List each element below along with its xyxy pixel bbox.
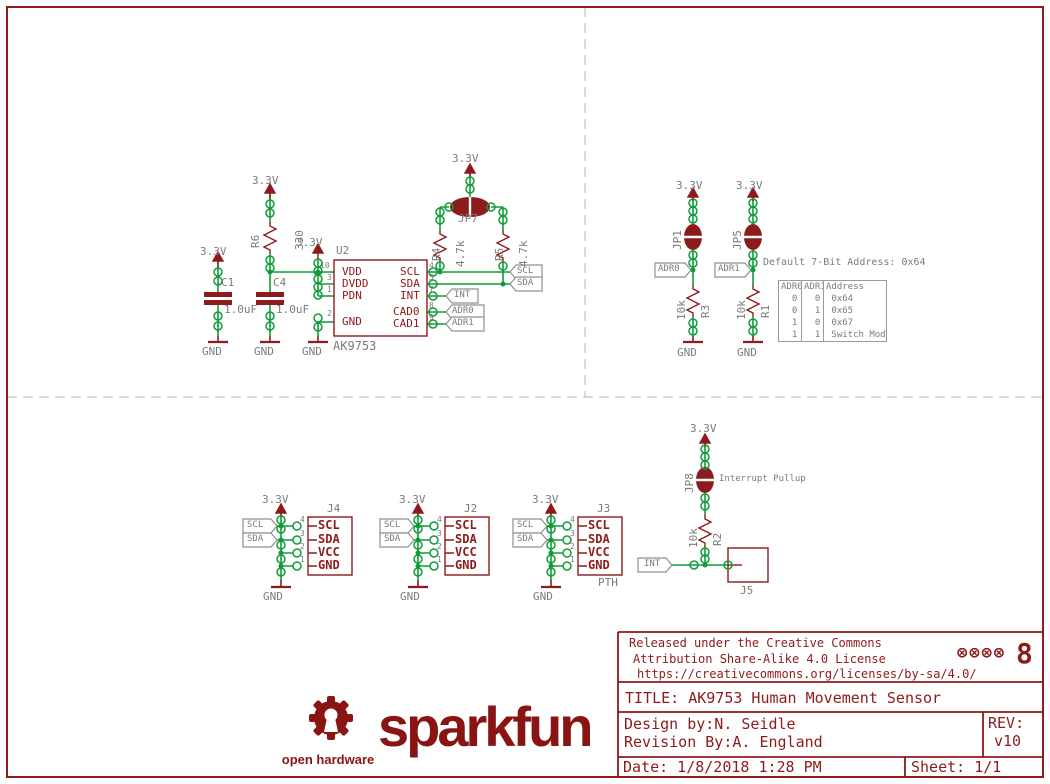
schematic-sheet: 3.3VC11.0uFGND3.3VR6330C41.0uFGND3.3VGND… <box>0 0 1050 784</box>
refdes: C4 <box>273 277 286 288</box>
jumper-note: Interrupt Pullup <box>719 475 806 484</box>
pin-name: CAD1 <box>393 318 420 329</box>
gnd-label: GND <box>263 591 283 602</box>
gnd-label: GND <box>677 347 697 358</box>
refdes: JP7 <box>458 213 478 224</box>
pin-number: 4 <box>570 516 575 524</box>
pin-number: 4 <box>300 516 305 524</box>
net-flag-label: SDA <box>517 535 533 544</box>
power-net-label: 3.3V <box>296 237 323 248</box>
refdes: JP5 <box>732 230 743 250</box>
value-label: 10k <box>676 300 687 320</box>
pin-number: 1 <box>570 556 575 564</box>
pin-name: DVDD <box>342 278 369 289</box>
connector-pin-label: GND <box>588 559 610 571</box>
pin-name: SCL <box>400 266 420 277</box>
net-flag-label: SDA <box>384 535 400 544</box>
design-by: Design by:N. Seidle <box>624 716 796 733</box>
connector-pin-label: SCL <box>588 519 610 531</box>
license-line-2: Attribution Share-Alike 4.0 License <box>633 653 886 667</box>
address-table-header: ADR1 <box>802 281 824 293</box>
pin-number: 1 <box>300 556 305 564</box>
address-table-cell: 1 <box>802 329 824 341</box>
net-flag-label: ADR1 <box>718 265 740 274</box>
pin-name: GND <box>342 316 362 327</box>
solder-jumpers <box>450 197 762 493</box>
net-flag-label: ADR0 <box>452 307 474 316</box>
sparkfun-wordmark: sparkfun <box>378 694 591 759</box>
refdes: JP1 <box>672 230 683 250</box>
refdes: J5 <box>740 585 753 596</box>
address-table-cell: 1 <box>802 305 824 317</box>
pin-number: 2 <box>300 543 305 551</box>
net-flag-label: INT <box>454 291 470 300</box>
net-flag-label: SCL <box>247 521 263 530</box>
net-flag-label: SDA <box>517 279 533 288</box>
power-net-label: 3.3V <box>399 494 426 505</box>
power-net-label: 3.3V <box>262 494 289 505</box>
value-label: 4.7k <box>455 241 466 268</box>
power-net-label: 3.3V <box>532 494 559 505</box>
connector-pin-label: SDA <box>318 533 340 545</box>
connector-pin-label: SCL <box>455 519 477 531</box>
sparkfun-logo: sparkfun open hardware <box>278 686 618 774</box>
refdes: R2 <box>712 533 723 546</box>
power-net-label: 3.3V <box>676 180 703 191</box>
refdes: R5 <box>494 248 505 261</box>
refdes: R4 <box>431 248 442 261</box>
power-net-label: 3.3V <box>200 246 227 257</box>
pin-number: 10 <box>320 262 330 270</box>
value-label: 1.0uF <box>276 304 309 315</box>
net-flag-label: SCL <box>517 267 533 276</box>
open-hardware-label: open hardware <box>278 752 378 767</box>
sheet-divider-lines <box>7 7 1043 397</box>
pin-number: 7 <box>429 286 434 294</box>
net-flag-label: ADR0 <box>658 265 680 274</box>
resistor-r6 <box>264 222 276 254</box>
net-flag-label: SCL <box>384 521 400 530</box>
connector-pin-label: GND <box>318 559 340 571</box>
gnd-label: GND <box>302 346 322 357</box>
refdes: R1 <box>760 305 771 318</box>
power-net-label: 3.3V <box>690 423 717 434</box>
address-table-cell: 0x67 <box>824 317 886 329</box>
refdes: R6 <box>250 235 261 248</box>
power-net-label: 3.3V <box>736 180 763 191</box>
pin-number: 2 <box>570 543 575 551</box>
oshw-mark-icon: 8 <box>1016 638 1033 670</box>
net-flag-label: SCL <box>517 521 533 530</box>
resistor-r3 <box>687 285 699 317</box>
net-flag-label: INT <box>644 560 660 569</box>
refdes: U2 <box>336 245 349 256</box>
part-number: AK9753 <box>333 340 376 352</box>
gnd-label: GND <box>254 346 274 357</box>
address-table-cell: 1 <box>779 329 802 341</box>
address-table-cell: Switch Mode <box>824 329 886 341</box>
power-net-label: 3.3V <box>452 153 479 164</box>
license-url: https://creativecommons.org/licenses/by-… <box>637 668 977 682</box>
pin-number: 8 <box>429 302 434 310</box>
value-label: 10k <box>688 528 699 548</box>
pin-number: 2 <box>327 310 332 318</box>
net-flag-label: ADR1 <box>452 319 474 328</box>
gnd-label: GND <box>533 591 553 602</box>
gnd-symbols <box>208 336 763 587</box>
address-table: ADR0ADR1Address 0 0 0x64 0 1 0x65 1 0 0x… <box>778 280 887 342</box>
address-table-cell: 0 <box>802 293 824 305</box>
address-table-cell: 0x65 <box>824 305 886 317</box>
refdes: JP8 <box>684 473 695 493</box>
rev-value: v10 <box>994 733 1021 750</box>
pin-number: 9 <box>429 314 434 322</box>
cc-license-icons: ⊗⊗⊗⊗ <box>957 644 1006 664</box>
gnd-label: GND <box>202 346 222 357</box>
rev-label: REV: <box>988 715 1024 732</box>
connector-pin-label: VCC <box>318 546 340 558</box>
pin-number: 1 <box>437 556 442 564</box>
pin-name: CAD0 <box>393 306 420 317</box>
connector-pin-label: SDA <box>588 533 610 545</box>
pin-number: 3 <box>300 530 305 538</box>
pin-number: 2 <box>437 543 442 551</box>
date-value: Date: 1/8/2018 1:28 PM <box>623 759 822 776</box>
power-net-label: 3.3V <box>252 175 279 186</box>
sheet-value: Sheet: 1/1 <box>911 759 1001 776</box>
capacitor-c1 <box>204 292 232 297</box>
gnd-label: GND <box>737 347 757 358</box>
jumper-splits <box>470 197 762 480</box>
pin-number: 3 <box>570 530 575 538</box>
pin-name: SDA <box>400 278 420 289</box>
pin-number: 3 <box>327 274 332 282</box>
value-label: 10k <box>736 300 747 320</box>
pin-number: 5 <box>429 274 434 282</box>
address-table-cell: 0x64 <box>824 293 886 305</box>
capacitor-c4 <box>256 292 284 297</box>
address-table-cell: 1 <box>779 317 802 329</box>
pin-number: 1 <box>327 286 332 294</box>
refdes: J4 <box>327 503 340 514</box>
address-table-cell: 0 <box>779 305 802 317</box>
connector-pin-label: VCC <box>455 546 477 558</box>
resistor-r2 <box>699 515 711 547</box>
connector-pin-label: SCL <box>318 519 340 531</box>
connector-pin-label: VCC <box>588 546 610 558</box>
refdes: J2 <box>464 503 477 514</box>
refdes: C1 <box>221 277 234 288</box>
pin-number: 4 <box>437 516 442 524</box>
address-table-header: Address <box>824 281 886 293</box>
vcc-arrows <box>213 164 758 517</box>
net-flag-label: SDA <box>247 535 263 544</box>
license-line-1: Released under the Creative Commons <box>629 637 882 651</box>
open-hardware-gear-icon <box>296 688 366 752</box>
pin-name: VDD <box>342 266 362 277</box>
mount-type-label: PTH <box>598 577 618 588</box>
pin-number: 3 <box>437 530 442 538</box>
refdes: J3 <box>597 503 610 514</box>
pin-name: PDN <box>342 290 362 301</box>
address-table-header: ADR0 <box>779 281 802 293</box>
address-table-cell: 0 <box>802 317 824 329</box>
refdes: R3 <box>700 305 711 318</box>
pin-number: 4 <box>429 262 434 270</box>
address-table-cell: 0 <box>779 293 802 305</box>
gnd-label: GND <box>400 591 420 602</box>
pin-name: INT <box>400 290 420 301</box>
value-label: 1.0uF <box>224 304 257 315</box>
revision-by: Revision By:A. England <box>624 734 823 751</box>
table-note: Default 7-Bit Address: 0x64 <box>763 258 926 268</box>
connector-pin-label: SDA <box>455 533 477 545</box>
resistor-r1 <box>747 285 759 317</box>
connector-pin-label: GND <box>455 559 477 571</box>
schematic-title: TITLE: AK9753 Human Movement Sensor <box>625 690 941 707</box>
value-label: 4.7k <box>518 241 529 268</box>
